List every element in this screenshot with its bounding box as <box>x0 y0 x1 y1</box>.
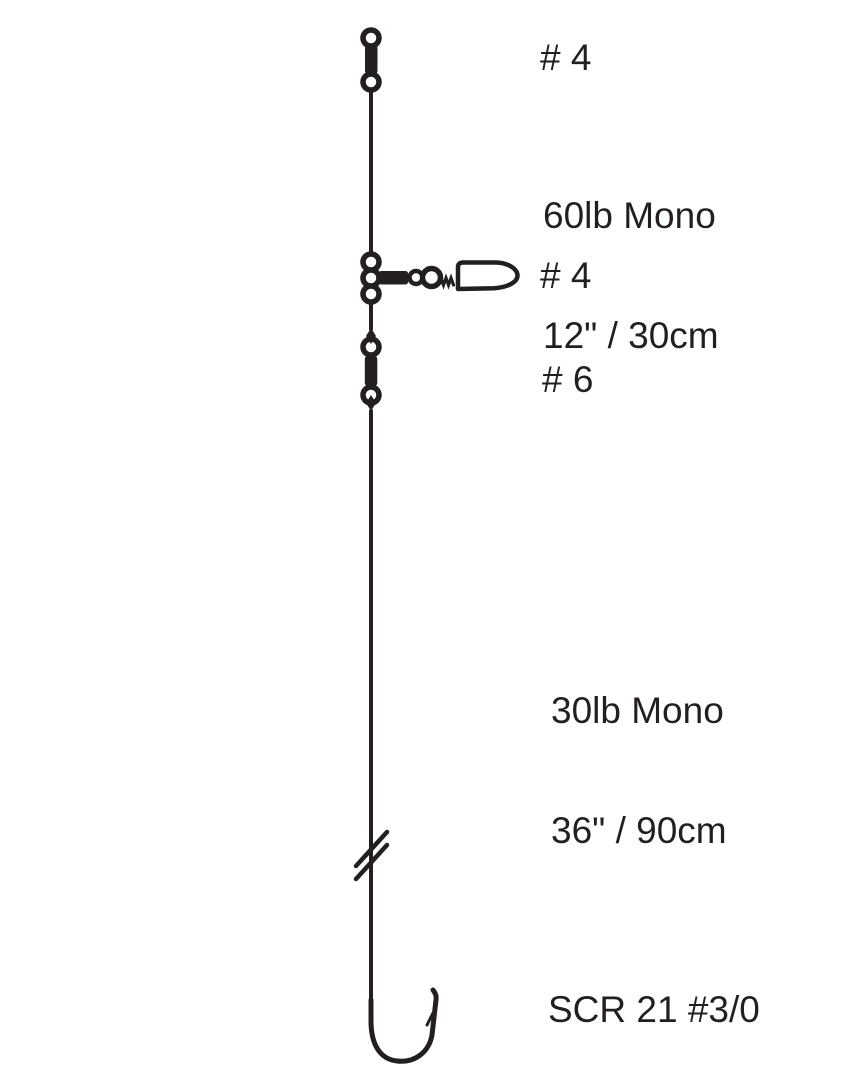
upper-mono-strength: 60lb Mono <box>543 196 719 236</box>
wire-coil-icon <box>441 278 454 285</box>
upper-mono-length: 12" / 30cm <box>543 316 719 356</box>
barrel-swivel-lower-icon <box>363 328 379 411</box>
lower-mono-spec-label: 30lb Mono 36" / 90cm <box>551 611 727 931</box>
rig-beads-icon <box>363 254 379 302</box>
snap-swivel-size-label: # 4 <box>540 256 591 296</box>
snap-swivel-icon <box>379 263 518 290</box>
rig-diagram: # 4 60lb Mono 12" / 30cm # 4 # 6 30lb Mo… <box>0 0 864 1080</box>
barrel-swivel-top-icon <box>363 30 379 90</box>
lower-mono-length: 36" / 90cm <box>551 811 727 851</box>
hook-model-label: SCR 21 #3/0 <box>548 990 760 1030</box>
hook-icon <box>371 990 436 1061</box>
lower-swivel-size-label: # 6 <box>542 360 593 400</box>
snap-clip-icon <box>458 263 518 290</box>
rig-line-art <box>0 0 864 1080</box>
top-swivel-size-label: # 4 <box>540 38 591 78</box>
lower-mono-strength: 30lb Mono <box>551 691 727 731</box>
